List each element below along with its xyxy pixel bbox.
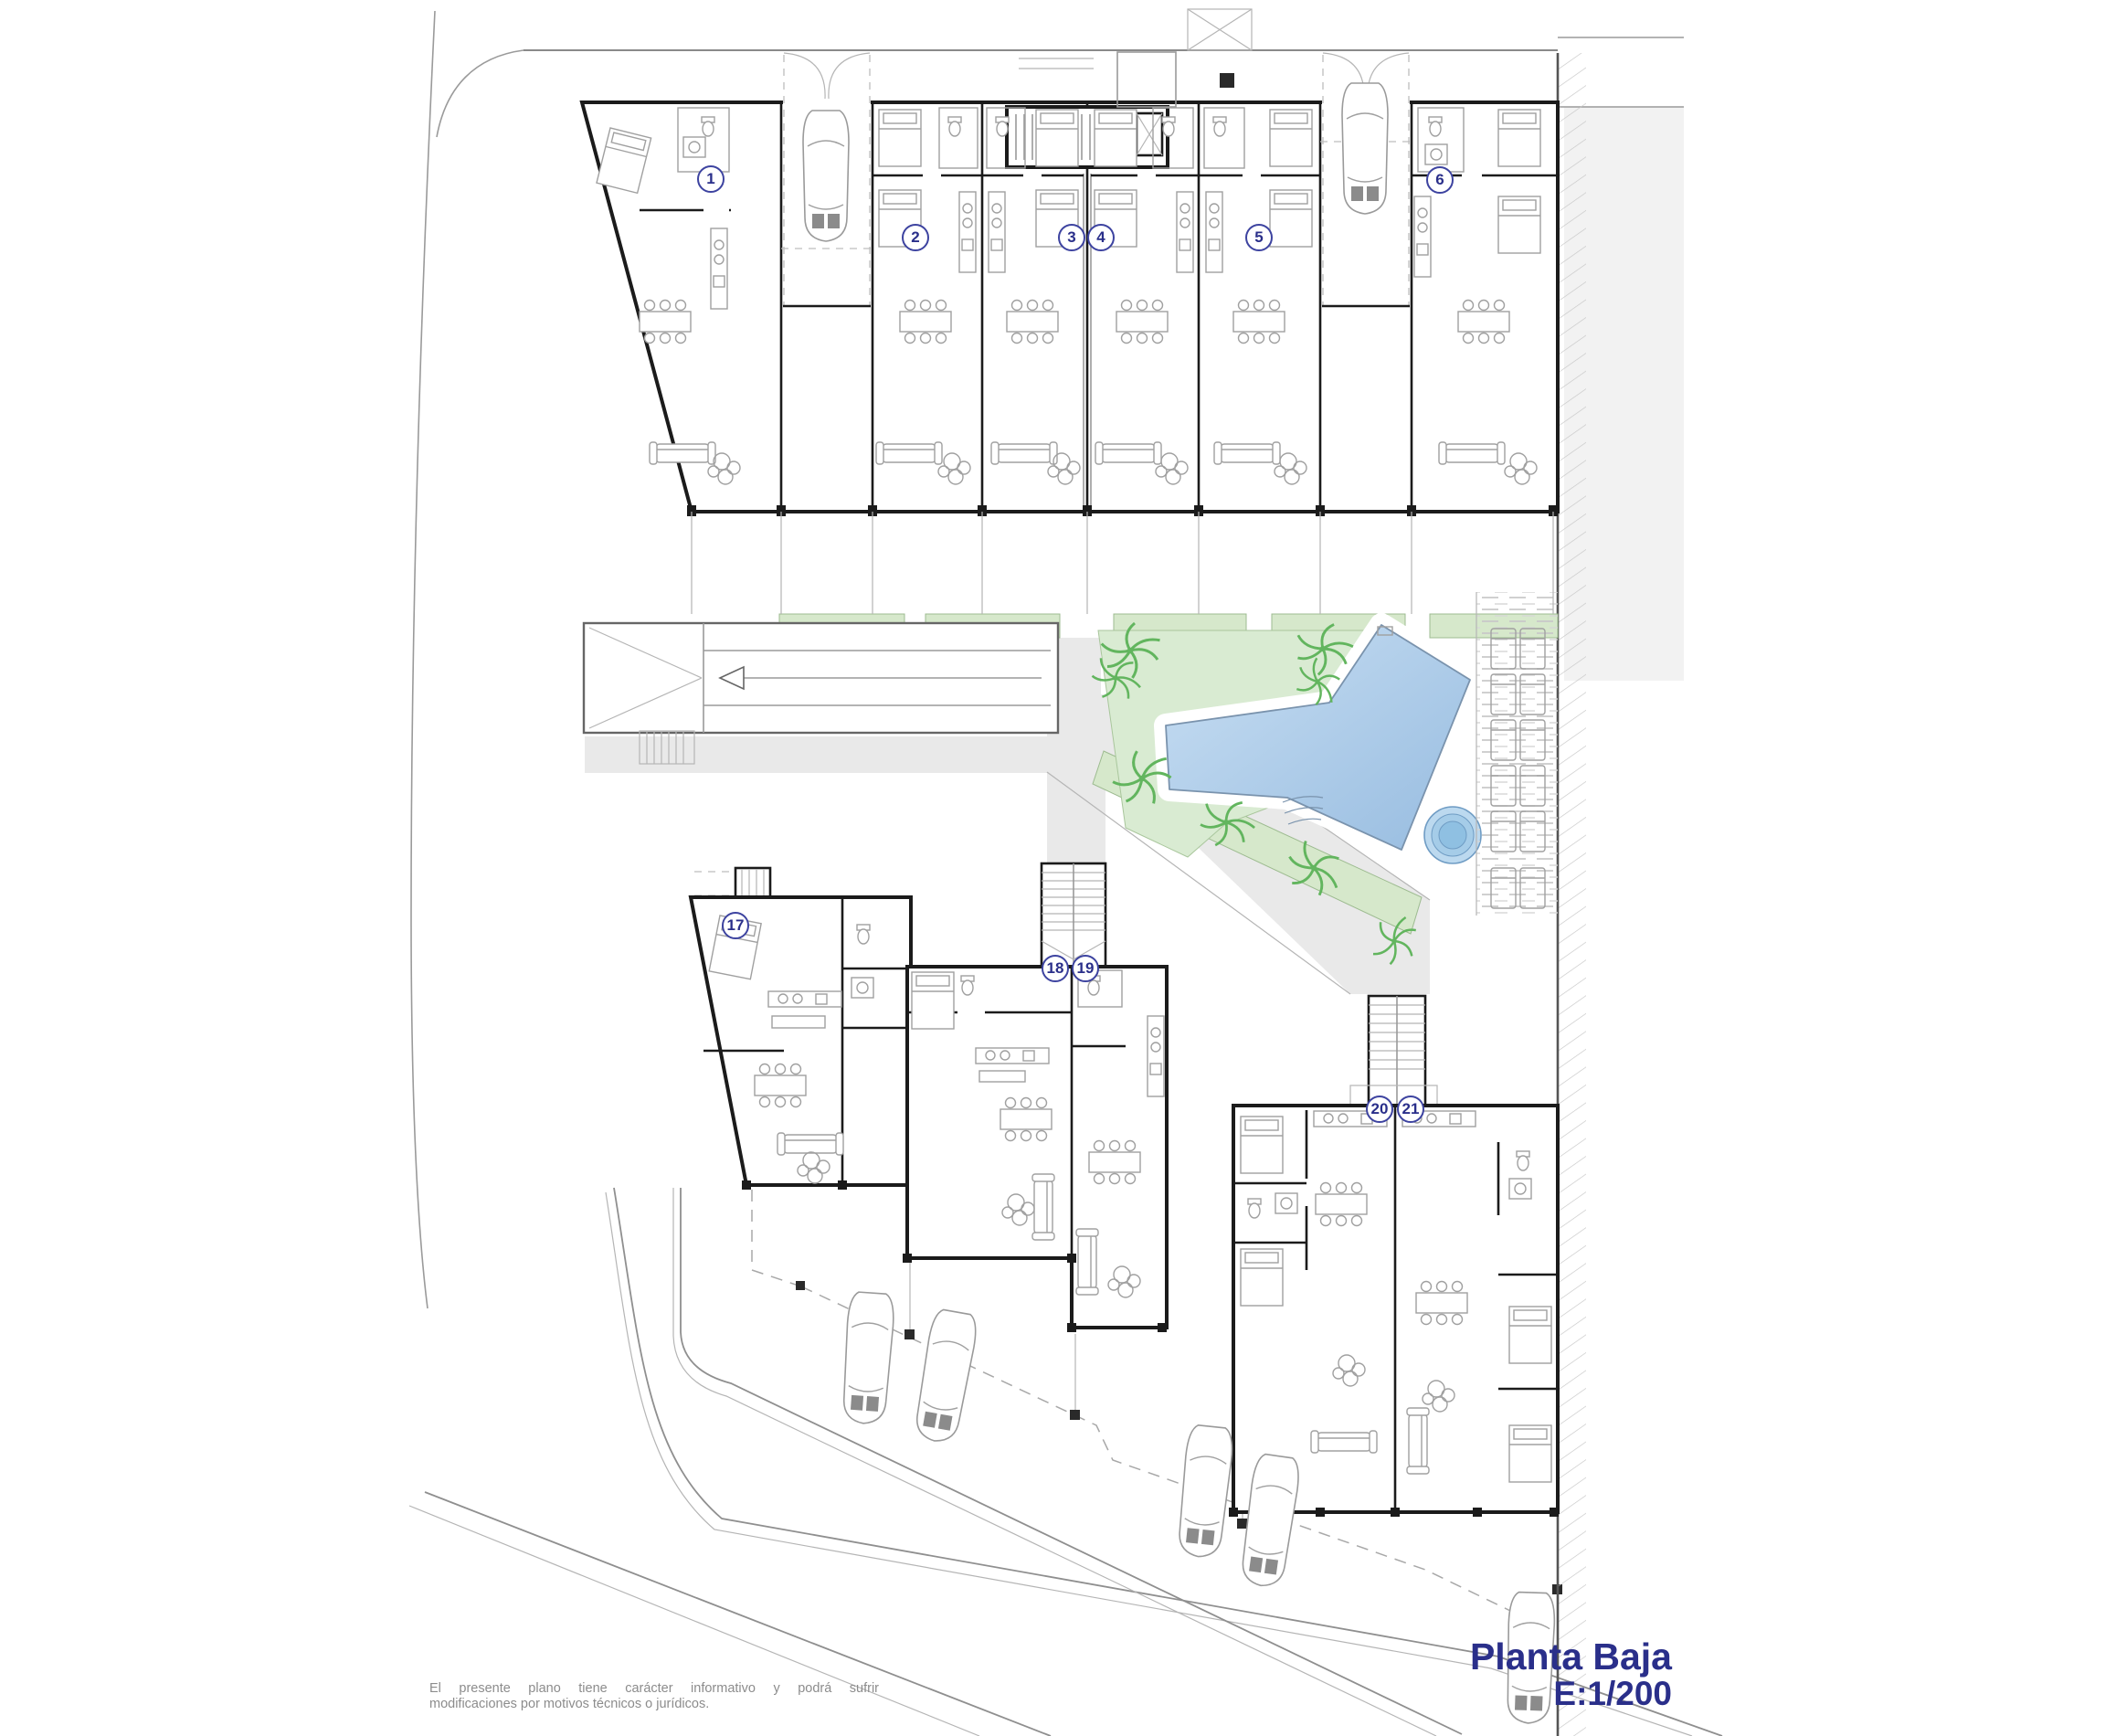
floor-plan-sheet: 1 2 3 4 5 6 17 18 19 20 21 Planta Baja E… xyxy=(0,0,2105,1736)
driveway-1 xyxy=(781,52,873,306)
site-plan-drawing xyxy=(0,0,2105,1736)
disclaimer-note: El presente plano tiene carácter informa… xyxy=(429,1681,879,1712)
parked-car xyxy=(1342,83,1388,214)
upper-terraces xyxy=(687,505,1558,614)
spa-pool xyxy=(1424,807,1481,863)
stair-M xyxy=(1042,863,1105,967)
boundary-hatch xyxy=(1559,53,1586,1736)
unit-badge-20: 20 xyxy=(1366,1096,1393,1123)
right-boundary xyxy=(1558,37,1684,1736)
lower-building-right xyxy=(1229,996,1559,1517)
upper-building xyxy=(582,9,1558,614)
lower-building-middle xyxy=(903,863,1167,1332)
unit-badge-21: 21 xyxy=(1397,1096,1424,1123)
unit-badge-17: 17 xyxy=(722,912,749,939)
plan-scale: E:1/200 xyxy=(1370,1676,1672,1712)
stair-R xyxy=(1350,996,1437,1106)
parked-car xyxy=(803,111,849,241)
title-block: Planta Baja E:1/200 xyxy=(1370,1637,1672,1712)
plan-title: Planta Baja xyxy=(1370,1637,1672,1676)
unit-badge-1: 1 xyxy=(697,165,725,193)
unit-badge-4: 4 xyxy=(1087,224,1115,251)
unit-badge-3: 3 xyxy=(1058,224,1085,251)
unit-badge-2: 2 xyxy=(902,224,929,251)
unit-badge-6: 6 xyxy=(1426,166,1454,194)
lower-building-left xyxy=(691,868,911,1190)
stair-L xyxy=(694,868,770,898)
driveway-2 xyxy=(1320,52,1412,306)
disclaimer-line-2: modificaciones por motivos técnicos o ju… xyxy=(429,1697,879,1712)
unit-badge-19: 19 xyxy=(1072,955,1099,982)
sunbathing-deck xyxy=(1476,592,1558,916)
unit-badge-18: 18 xyxy=(1042,955,1069,982)
disclaimer-line-1: El presente plano tiene carácter informa… xyxy=(429,1681,879,1697)
utility-room xyxy=(1188,9,1252,88)
unit-badge-5: 5 xyxy=(1245,224,1273,251)
